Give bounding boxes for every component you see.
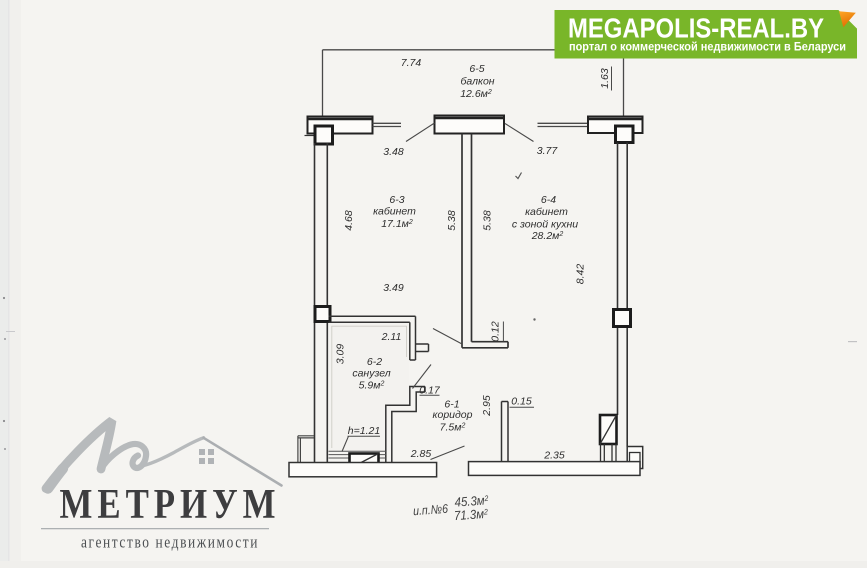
svg-text:2.11: 2.11 (381, 331, 402, 343)
svg-text:0.17: 0.17 (419, 385, 441, 397)
svg-text:MEGAPOLIS-REAL.BY: MEGAPOLIS-REAL.BY (568, 13, 824, 44)
svg-text:3.49: 3.49 (383, 282, 404, 294)
svg-text:2.35: 2.35 (543, 450, 565, 462)
svg-text:71.3м2: 71.3м2 (453, 506, 488, 523)
svg-text:кабинет: кабинет (525, 206, 568, 218)
svg-text:6-3: 6-3 (389, 194, 404, 206)
svg-text:28.2м2: 28.2м2 (531, 230, 564, 242)
svg-text:с зоной кухни: с зоной кухни (512, 219, 578, 231)
svg-text:5.38: 5.38 (446, 210, 458, 231)
svg-text:и.п.№6: и.п.№6 (413, 502, 449, 518)
svg-text:6-2: 6-2 (367, 356, 382, 368)
svg-text:7.74: 7.74 (401, 57, 422, 69)
svg-text:17.1м2: 17.1м2 (381, 218, 413, 230)
svg-text:МЕТРИУМ: МЕТРИУМ (60, 482, 281, 528)
svg-text:6-4: 6-4 (541, 194, 556, 206)
svg-text:агентство недвижимости: агентство недвижимости (81, 533, 259, 552)
svg-text:балкон: балкон (460, 76, 494, 88)
svg-text:санузел: санузел (352, 368, 390, 380)
svg-text:5.38: 5.38 (482, 210, 494, 231)
svg-text:3.77: 3.77 (537, 145, 559, 157)
svg-text:2.95: 2.95 (481, 395, 493, 417)
svg-text:6-5: 6-5 (469, 63, 484, 75)
svg-text:4.68: 4.68 (343, 210, 355, 231)
svg-text:3.09: 3.09 (335, 344, 347, 365)
svg-text:коридор: коридор (433, 409, 473, 421)
svg-text:3.48: 3.48 (383, 146, 404, 158)
svg-text:портал о коммерческой недвижим: портал о коммерческой недвижимости в Бел… (569, 41, 846, 54)
svg-text:8.42: 8.42 (575, 264, 587, 285)
svg-text:2.85: 2.85 (410, 448, 432, 460)
svg-text:1.63: 1.63 (599, 68, 611, 89)
svg-text:0.15: 0.15 (511, 396, 532, 408)
svg-text:0.12: 0.12 (490, 321, 502, 342)
svg-text:кабинет: кабинет (373, 206, 416, 218)
svg-text:h=1.21: h=1.21 (348, 425, 380, 437)
svg-text:12.6м2: 12.6м2 (460, 88, 492, 100)
